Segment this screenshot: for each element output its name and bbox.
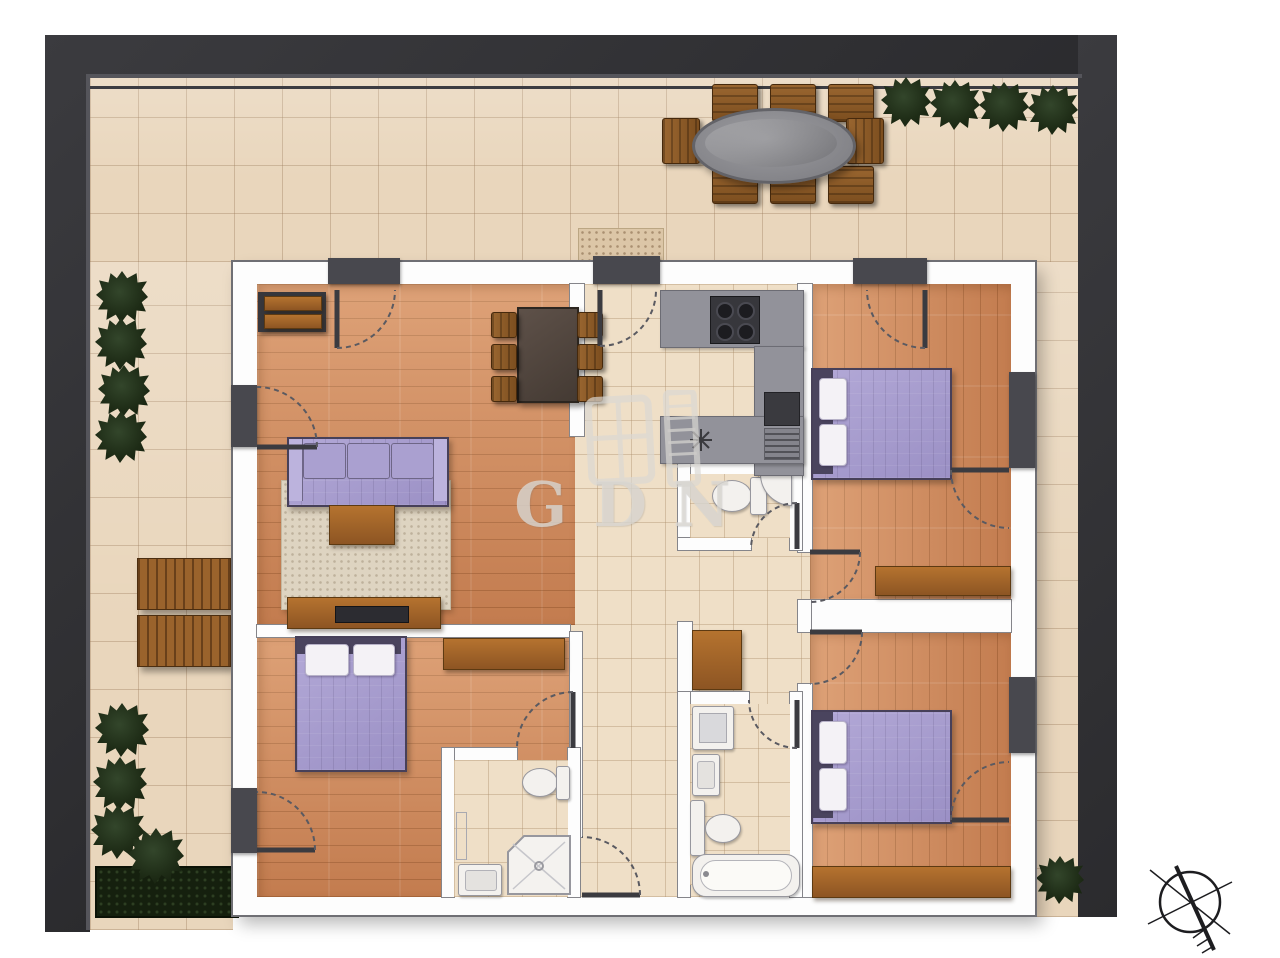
dining-chair bbox=[577, 312, 603, 338]
bedroom-bench bbox=[875, 566, 1011, 596]
bath-sink bbox=[692, 754, 720, 796]
dining-chair bbox=[577, 344, 603, 370]
parapet-top bbox=[45, 35, 1117, 78]
parapet-left bbox=[45, 35, 90, 932]
patio-chair bbox=[828, 166, 874, 204]
wall bbox=[798, 600, 812, 632]
sideboard-shelf bbox=[264, 296, 322, 311]
pillow bbox=[819, 721, 847, 764]
wall bbox=[812, 600, 1011, 632]
toilet-cistern bbox=[556, 766, 570, 800]
hall-cabinet bbox=[692, 630, 742, 690]
pillow bbox=[305, 644, 349, 676]
window-lintel bbox=[853, 258, 927, 284]
toilet-cistern bbox=[690, 800, 705, 856]
living-sideboard bbox=[258, 292, 326, 332]
balcony-door-panel bbox=[1009, 677, 1035, 753]
balcony-door-panel bbox=[1009, 372, 1035, 468]
washer-lid bbox=[699, 713, 727, 743]
window-lintel bbox=[231, 385, 257, 447]
bathtub-faucet bbox=[703, 871, 709, 877]
north-arrow-compass bbox=[1148, 866, 1232, 953]
dining-chair bbox=[491, 344, 517, 370]
bedroom-sideboard bbox=[812, 866, 1011, 898]
sofa-arm bbox=[289, 439, 303, 501]
dining-chair bbox=[577, 376, 603, 402]
bedroom-sideboard bbox=[443, 638, 565, 670]
kitchen-sink-basin bbox=[764, 392, 800, 426]
parapet-right bbox=[1078, 35, 1117, 917]
railing-top bbox=[90, 86, 1078, 89]
bathtub-basin bbox=[700, 860, 792, 891]
sofa-cushion bbox=[303, 443, 346, 479]
terrace-right-strip bbox=[1035, 262, 1078, 917]
kitchen-drainboard bbox=[764, 428, 800, 460]
coffee-table bbox=[329, 505, 395, 545]
ensuite-wall bbox=[442, 748, 454, 897]
toilet-bowl bbox=[522, 768, 558, 797]
double-bed bbox=[295, 636, 407, 772]
sink-basin bbox=[465, 870, 497, 891]
burner bbox=[716, 323, 734, 341]
dining-chair bbox=[491, 312, 517, 338]
sink-basin bbox=[697, 761, 715, 789]
sun-lounger bbox=[137, 558, 231, 610]
sofa-cushion bbox=[391, 443, 434, 479]
sofa-arm bbox=[433, 439, 447, 501]
sofa bbox=[287, 437, 449, 507]
wc-wall bbox=[678, 462, 690, 550]
wall-closet bbox=[678, 622, 692, 692]
toilet-bowl bbox=[712, 480, 752, 512]
window-lintel bbox=[328, 258, 400, 284]
cooktop bbox=[710, 296, 760, 344]
pillow bbox=[819, 424, 847, 466]
burner bbox=[716, 302, 734, 320]
double-bed bbox=[811, 710, 952, 824]
pillow bbox=[819, 768, 847, 811]
ensuite-sink bbox=[458, 864, 502, 896]
burner bbox=[737, 302, 755, 320]
patio-table bbox=[692, 108, 856, 184]
dining-chair bbox=[491, 376, 517, 402]
pillow bbox=[353, 644, 395, 676]
double-bed bbox=[811, 368, 952, 480]
wc-wall bbox=[678, 538, 751, 550]
entry-lintel bbox=[593, 256, 660, 284]
sofa-cushion bbox=[347, 443, 390, 479]
towel-rail bbox=[456, 812, 467, 860]
tv bbox=[335, 606, 409, 623]
toilet-bowl bbox=[705, 814, 741, 843]
dining-table bbox=[517, 307, 579, 403]
sun-lounger bbox=[137, 615, 231, 667]
sideboard-shelf bbox=[264, 314, 322, 329]
floor-plan-canvas: GDN bbox=[0, 0, 1280, 958]
washing-machine bbox=[692, 706, 734, 750]
pillow bbox=[819, 378, 847, 420]
bathtub bbox=[692, 854, 800, 897]
bath-wall bbox=[678, 692, 690, 897]
patio-chair bbox=[828, 84, 874, 122]
burner bbox=[737, 323, 755, 341]
window-lintel bbox=[231, 788, 257, 853]
patio-table-glass bbox=[705, 119, 837, 167]
